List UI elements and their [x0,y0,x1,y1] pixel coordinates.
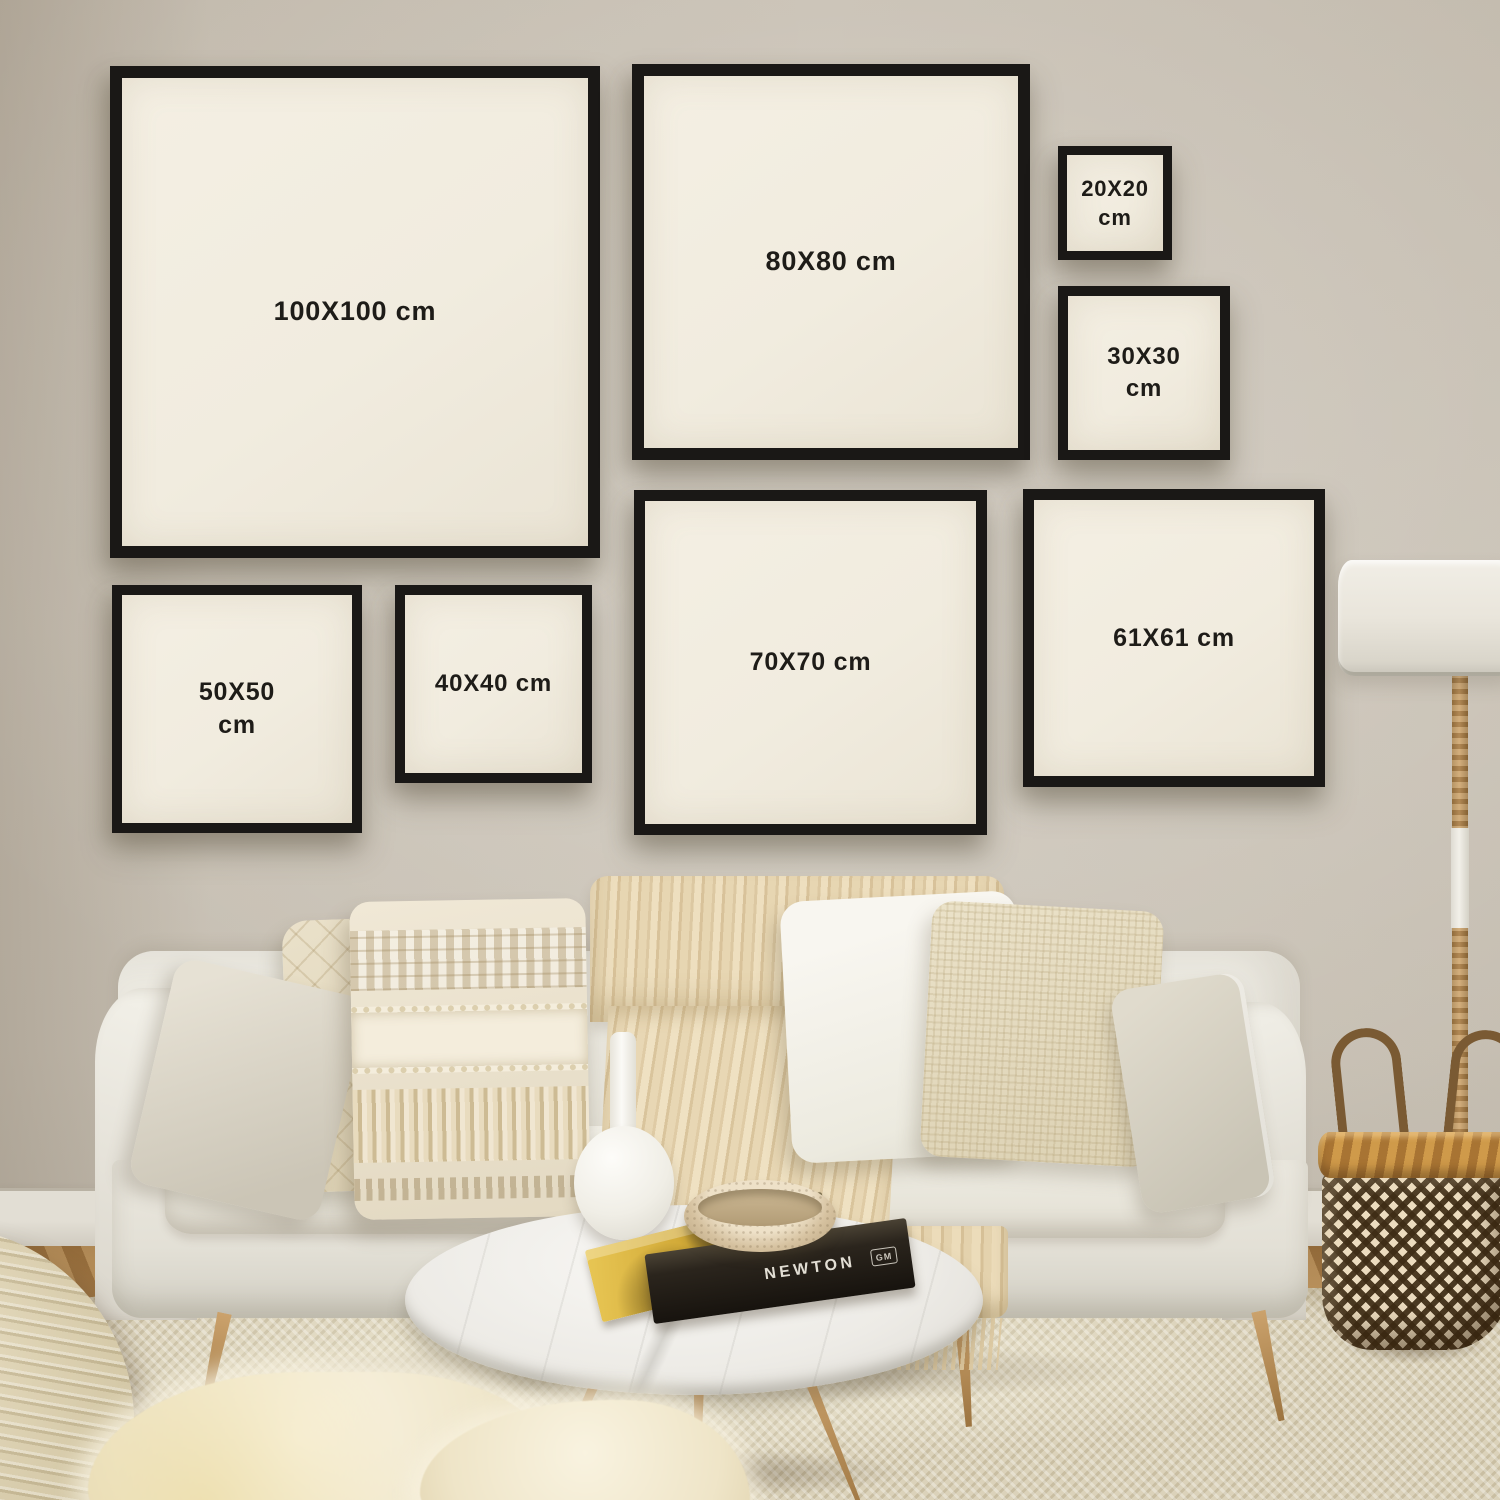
size-frame-30x30: 30X30 cm [1058,286,1230,460]
frame-size-label: 30X30 cm [1107,341,1180,404]
floor-lamp-shade [1338,560,1500,676]
size-text: 30X30 [1107,341,1180,373]
size-text: 70X70 cm [750,646,872,679]
frame-size-label: 20X20 cm [1081,174,1149,232]
ceramic-bowl [684,1180,836,1252]
boho-braid-band [350,927,587,992]
zigzag-belly-basket [1322,1172,1500,1350]
size-unit: cm [1107,373,1180,405]
basket-rim [1318,1132,1500,1178]
frame-size-label: 40X40 cm [435,668,552,700]
book-publisher-logo: GM [870,1246,898,1266]
living-room-frame-size-guide: 100X100 cm 80X80 cm 20X20 cm 30X30 cm 50… [0,0,1500,1500]
boho-tassel-band [353,1086,590,1163]
size-text: 80X80 cm [766,244,897,280]
size-frame-20x20: 20X20 cm [1058,146,1172,260]
size-frame-50x50: 50X50 cm [112,585,362,833]
size-text: 20X20 [1081,174,1149,203]
pillow-boho-textured [349,898,591,1220]
size-frame-80x80: 80X80 cm [632,64,1030,460]
frame-size-label: 50X50 cm [199,676,275,742]
size-unit: cm [199,709,275,742]
size-text: 50X50 [199,676,275,709]
size-text: 61X61 cm [1113,622,1235,655]
frame-size-label: 80X80 cm [766,244,897,280]
size-text: 100X100 cm [274,294,437,330]
book-newton-spine-text: NEWTON [763,1254,856,1285]
white-vase [574,1126,674,1240]
size-frame-100x100: 100X100 cm [110,66,600,558]
size-frame-61x61: 61X61 cm [1023,489,1325,787]
frame-size-label: 70X70 cm [750,646,872,679]
size-unit: cm [1081,203,1149,232]
frame-size-label: 61X61 cm [1113,622,1235,655]
frame-size-label: 100X100 cm [274,294,437,330]
boho-fluffy-band [351,1003,588,1074]
lamp-pole-band [1451,828,1469,928]
size-text: 40X40 cm [435,668,552,700]
size-frame-70x70: 70X70 cm [634,490,987,835]
size-frame-40x40: 40X40 cm [395,585,592,783]
boho-bobble-band [354,1175,590,1201]
